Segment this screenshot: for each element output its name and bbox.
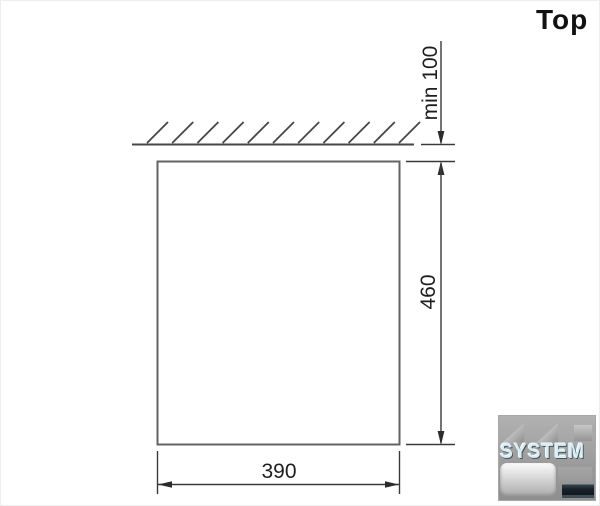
watermark-block-shape (558, 467, 592, 485)
arrow-right-width (385, 481, 399, 488)
dimension-label-top-clearance: min 100 (419, 46, 442, 121)
watermark-brand-text: SYSTEM (500, 440, 588, 464)
watermark-bar-shape (500, 463, 556, 497)
unit-outline (158, 162, 400, 445)
watermark-mini-logo (562, 484, 594, 498)
vendor-watermark: SYSTEM (498, 415, 596, 501)
screenshot-stage: min 100 460 390 Top SYSTEM (0, 0, 600, 506)
watermark-square-icon (574, 425, 592, 441)
dimension-label-depth: 460 (417, 274, 440, 309)
ceiling-hatch (132, 122, 420, 145)
dimension-label-width: 390 (261, 460, 296, 483)
view-title: Top (536, 4, 588, 36)
arrow-down-ceiling (438, 131, 445, 145)
hatch-strokes (147, 122, 420, 143)
arrow-down-unit-bottom (438, 431, 445, 445)
arrow-left-width (158, 481, 172, 488)
